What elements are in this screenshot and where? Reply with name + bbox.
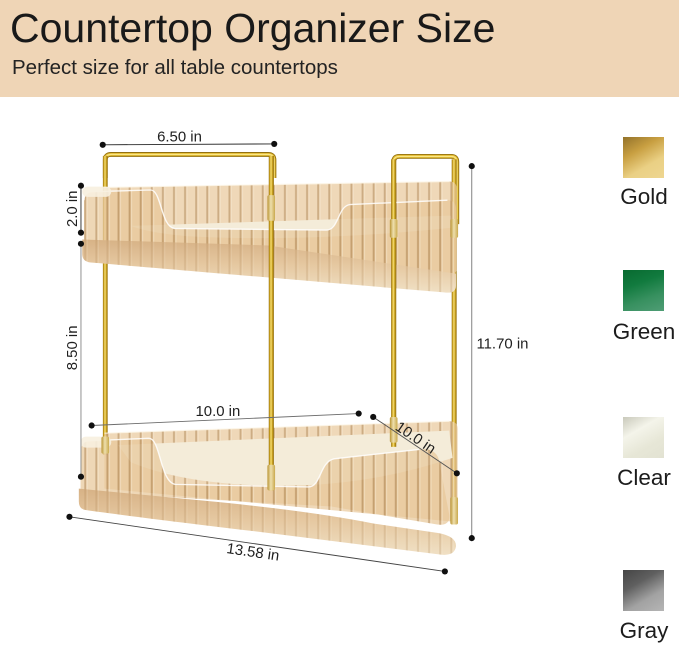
color-swatch-label: Clear (598, 465, 679, 491)
dimension-label-total-height: 11.70 in (476, 336, 528, 353)
page-title: Countertop Organizer Size (10, 6, 679, 52)
dimension-label-tier-height: 2.0 in (64, 191, 81, 228)
dimension-label-gap-height: 8.50 in (64, 325, 81, 370)
color-swatch-label: Green (598, 319, 679, 345)
pole-connector (450, 497, 458, 524)
header-banner: Countertop Organizer Size Perfect size f… (0, 0, 679, 97)
top-handle-rail-left (105, 154, 274, 178)
product-size-infographic: Countertop Organizer Size Perfect size f… (0, 0, 679, 661)
page-subtitle: Perfect size for all table countertops (12, 56, 679, 80)
pole-connector (390, 219, 398, 238)
dimension-label-top-width: 6.50 in (157, 128, 202, 145)
organizer-illustration: 6.50 in 2.0 in 8.50 in 10.0 in 10.0 in 1… (0, 97, 679, 661)
pole-connector (450, 219, 458, 238)
color-swatch-gold (623, 137, 664, 178)
gold-pole-right-front (391, 159, 396, 447)
pole-connector (267, 195, 275, 221)
dimension-label-base-width: 10.0 in (196, 403, 241, 420)
color-swatch-clear (623, 417, 664, 458)
dimension-label-front-width: 13.58 in (225, 540, 280, 564)
color-swatch-label: Gold (598, 184, 679, 210)
diagram-canvas: 6.50 in 2.0 in 8.50 in 10.0 in 10.0 in 1… (0, 97, 679, 661)
pole-connector (101, 437, 109, 454)
pole-connector (267, 465, 275, 491)
color-swatch-green (623, 270, 664, 311)
color-swatch-gray (623, 570, 664, 611)
color-swatch-label: Gray (598, 618, 679, 644)
